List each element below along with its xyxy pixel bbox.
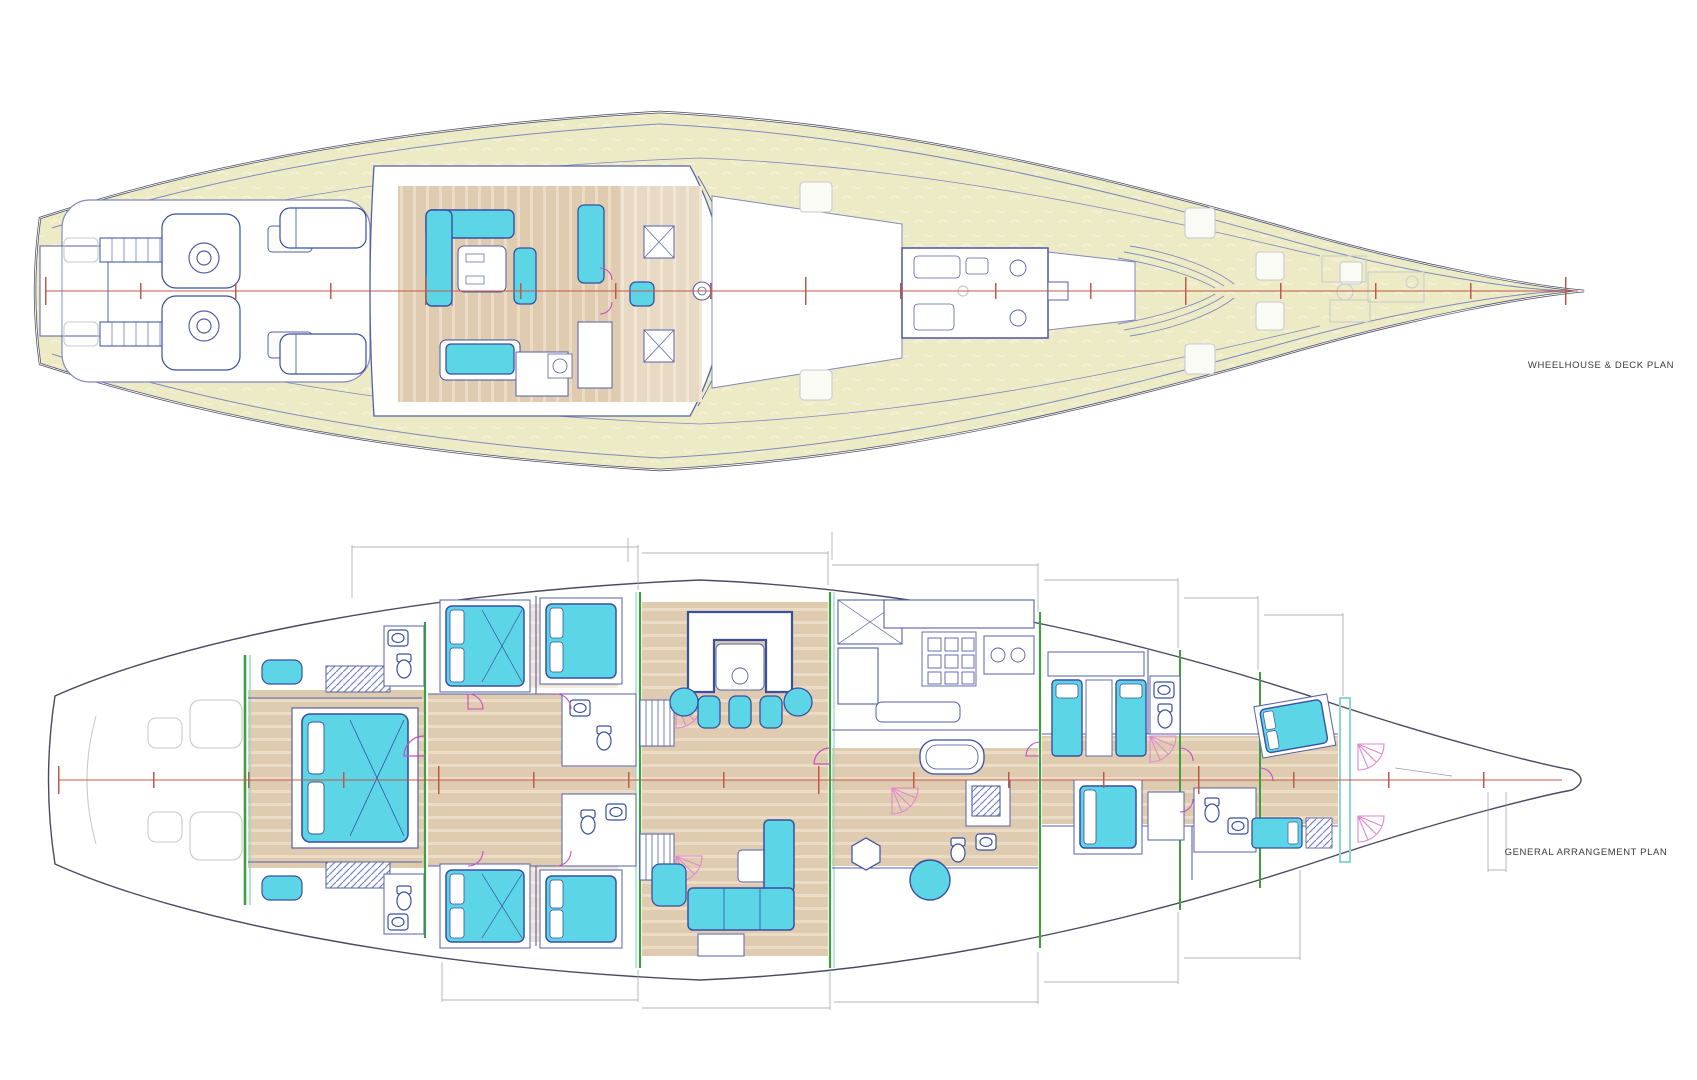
- wheelhouse-plan-title: WHEELHOUSE & DECK PLAN: [1528, 360, 1674, 371]
- guest-bathroom: [562, 694, 636, 766]
- owner-bathroom-aft: [384, 626, 424, 686]
- drawing-sheet: WHEELHOUSE & DECK PLAN: [0, 0, 1697, 1080]
- owner-bathroom-fwd: [384, 874, 424, 934]
- guest-bed: [540, 870, 622, 948]
- guest-bed: [440, 864, 530, 948]
- toilet: [597, 726, 611, 750]
- fwd-bunk: [1252, 818, 1302, 848]
- dinette-chair: [784, 688, 812, 716]
- sink: [606, 804, 626, 820]
- crew-bunk: [1052, 680, 1082, 756]
- sink: [976, 834, 996, 850]
- toilet: [1158, 704, 1172, 728]
- toilet: [397, 654, 411, 678]
- yacht-plans-svg: WHEELHOUSE & DECK PLAN: [0, 0, 1697, 1080]
- dinette: [670, 612, 812, 728]
- owner-seat: [262, 660, 302, 684]
- crew-bathroom: [1150, 676, 1180, 734]
- winch: [189, 243, 219, 273]
- toilet: [1205, 798, 1219, 822]
- stove: [922, 632, 976, 686]
- wheelhouse-chair: [514, 248, 536, 304]
- sink: [388, 630, 408, 646]
- crew-lockers: [1048, 652, 1144, 676]
- fwd-bathroom: [1194, 788, 1256, 852]
- owner-wardrobe: [326, 862, 390, 888]
- sail-locker: [902, 248, 1068, 338]
- dinette-chair: [670, 688, 698, 716]
- winch: [189, 311, 219, 341]
- dinette-stool: [698, 696, 720, 728]
- sink: [388, 914, 408, 930]
- toilet: [951, 838, 965, 862]
- guest-bed: [440, 600, 530, 692]
- toilet: [397, 886, 411, 910]
- sink: [570, 700, 590, 716]
- general-arrangement-plan: GENERAL ARRANGEMENT PLAN: [49, 532, 1668, 1010]
- galley-sink: [984, 636, 1034, 674]
- wheelhouse-sofa-aft: [440, 340, 520, 380]
- owner-seat: [262, 876, 302, 900]
- guest-bathroom: [562, 794, 636, 866]
- guest-bed: [540, 598, 622, 684]
- forward-settee: [578, 205, 604, 283]
- galley-island: [876, 702, 960, 722]
- sink: [1228, 818, 1248, 834]
- ga-plan-title: GENERAL ARRANGEMENT PLAN: [1505, 847, 1668, 858]
- dinette-stool: [760, 696, 782, 728]
- toilet: [581, 810, 595, 834]
- bathtub: [920, 740, 984, 774]
- crew-bunk: [1116, 680, 1146, 756]
- nav-desk: [966, 780, 1010, 826]
- owner-wardrobe: [326, 666, 390, 692]
- saloon-cabinet: [698, 934, 744, 956]
- wheelhouse-table: [458, 246, 506, 292]
- sink: [1154, 682, 1174, 698]
- wheelhouse-deck-plan: WHEELHOUSE & DECK PLAN: [35, 112, 1674, 470]
- fwd-locker: [1306, 818, 1332, 848]
- dinette-stool: [729, 696, 751, 728]
